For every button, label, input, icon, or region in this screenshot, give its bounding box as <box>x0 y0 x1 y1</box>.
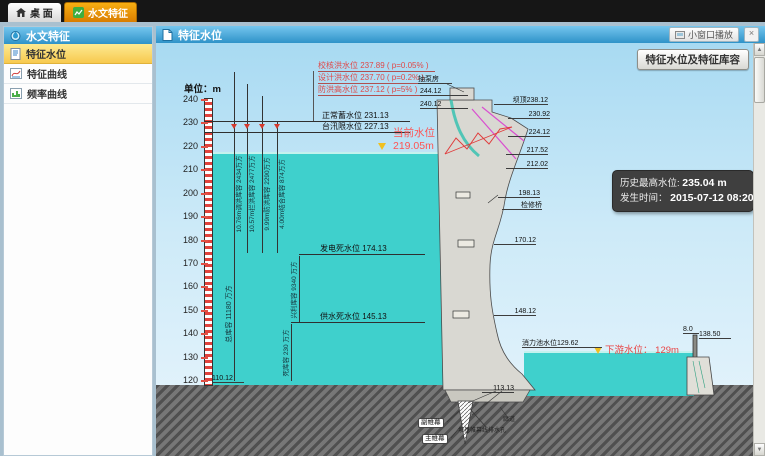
axis-tick-label: 210 <box>160 164 198 174</box>
axis-tick-mark <box>201 263 208 265</box>
tab-desktop[interactable]: 桌 面 <box>8 3 61 22</box>
tab-hydrology-label: 水文特征 <box>88 5 128 20</box>
capacity-arrow-icon <box>259 124 265 129</box>
main-curtain-label: 主帷幕 <box>422 434 448 444</box>
sidebar-title: 水文特征 <box>26 28 70 44</box>
axis-tick-mark <box>201 99 208 101</box>
current-water-level: 当前水位 219.05m <box>393 127 435 153</box>
axis-tick-mark <box>201 286 208 288</box>
power-dead-level-label: 发电死水位 174.13 <box>320 244 387 253</box>
elevation-callout: 8.0 <box>683 325 699 334</box>
capacity-button[interactable]: 特征水位及特征库容 <box>637 49 750 70</box>
axis-tick-mark <box>201 193 208 195</box>
mini-window-icon <box>675 31 685 39</box>
flood-limit-label: 台汛限水位 227.13 <box>322 122 389 131</box>
axis-tick-label: 170 <box>160 258 198 268</box>
unit-label: 单位：m <box>184 81 221 95</box>
gallery-lower <box>453 311 469 318</box>
mini-window-button[interactable]: 小窗口播放 <box>669 27 739 42</box>
history-time-value: 2015-07-12 08:20 <box>670 192 753 204</box>
scroll-down-icon[interactable]: ▼ <box>754 443 765 456</box>
home-icon <box>16 8 26 17</box>
history-time-label: 发生时间： <box>620 193 668 204</box>
scroll-up-icon[interactable]: ▲ <box>754 43 765 56</box>
capacity-arrow-icon <box>231 124 237 129</box>
axis-tick-mark <box>201 122 208 124</box>
axis-tick-label: 180 <box>160 235 198 245</box>
close-icon[interactable]: × <box>744 27 759 42</box>
power-dead-level-line <box>299 254 425 255</box>
foundation-note-label: 坝基帷幕线排水孔 <box>458 425 506 434</box>
elevation-callout: 198.13 <box>498 189 540 198</box>
level-connector-line <box>313 71 314 121</box>
gallery-note-label: 廊道 <box>503 414 515 423</box>
sidebar-item-frequency-curve[interactable]: 频率曲线 <box>4 84 152 104</box>
axis-tick-label: 200 <box>160 188 198 198</box>
axis-tick-mark <box>201 240 208 242</box>
staff-gauge <box>204 98 213 386</box>
axis-tick-label: 220 <box>160 141 198 151</box>
elevation-callout: 244.12 <box>420 87 468 96</box>
elevation-callout: 抽泵房 <box>418 75 452 84</box>
downstream-level-value: 129m <box>655 345 679 356</box>
vertical-scrollbar[interactable]: ▲ ▼ <box>753 43 765 456</box>
axis-tick-mark <box>201 216 208 218</box>
total-capacity-label: 总库容 11180 万方 <box>224 249 234 379</box>
sidebar-item-feature-curve[interactable]: 特征曲线 <box>4 64 152 84</box>
downstream-marker-icon <box>594 347 602 354</box>
current-water-level-value: 219.05m <box>393 140 435 153</box>
elevation-callout: 240.12 <box>420 100 468 109</box>
elevation-callout: 170.12 <box>494 236 536 245</box>
top-tab-bar: 桌 面 水文特征 <box>0 0 765 22</box>
elevation-callout: 230.92 <box>508 110 550 119</box>
gallery-middle <box>458 240 474 247</box>
axis-tick-mark <box>201 357 208 359</box>
elevation-callout: 消力池水位129.62 <box>522 339 602 348</box>
auxiliary-curtain-label: 副帷幕 <box>418 418 444 428</box>
panel-header: 特征水位 小窗口播放 × <box>156 26 765 43</box>
sidebar-item-feature-level[interactable]: 特征水位 <box>4 44 152 64</box>
axis-tick-label: 190 <box>160 211 198 221</box>
gallery-upper <box>456 192 470 198</box>
elevation-callout: 138.50 <box>699 330 731 339</box>
elevation-callout: 113.13 <box>482 384 514 393</box>
axis-tick-mark <box>201 169 208 171</box>
sidebar-item-label: 特征水位 <box>26 46 66 61</box>
history-max-level-label: 历史最高水位: <box>620 178 680 189</box>
chart-tab-icon <box>73 7 84 18</box>
supply-dead-level-line <box>291 322 425 323</box>
elevation-callout: 212.02 <box>506 160 548 169</box>
weir-needle <box>693 335 697 358</box>
dead-capacity-label: 死库容 230 万方 <box>280 308 290 398</box>
elevation-callout: 110.12 <box>212 374 244 383</box>
axis-tick-mark <box>201 310 208 312</box>
capacity-label: 10.76m调洪库容 2434万方 <box>233 139 243 249</box>
capacity-label: 9.99m防洪库容 2290万方 <box>261 139 271 249</box>
history-max-level-value: 235.04 m <box>682 177 726 189</box>
tab-desktop-label: 桌 面 <box>30 5 53 20</box>
normal-level-label: 正常蓄水位 231.13 <box>322 111 389 120</box>
axis-tick-mark <box>201 333 208 335</box>
axis-tick-label: 230 <box>160 117 198 127</box>
sidebar-header: 水文特征 <box>4 27 152 44</box>
axis-tick-label: 130 <box>160 352 198 362</box>
tab-hydrology[interactable]: 水文特征 <box>64 2 137 22</box>
check-flood-level: 校核洪水位 237.89 ( p=0.05% ) <box>318 60 435 72</box>
capacity-arrow-icon <box>274 124 280 129</box>
curve-chart-icon <box>10 68 22 79</box>
page-icon <box>162 29 173 41</box>
weir-block <box>687 357 714 395</box>
water-drop-icon <box>10 30 21 41</box>
scrollbar-thumb[interactable] <box>754 57 765 103</box>
document-icon <box>10 48 21 60</box>
capacity-label: 10.57m拦洪库容 2477万方 <box>246 139 256 249</box>
frequency-chart-icon <box>10 88 22 99</box>
panel-title: 特征水位 <box>178 27 222 43</box>
design-flood-level: 设计洪水位 237.70 ( p=0.2% ) <box>318 72 430 84</box>
grout-curtain-hatch <box>458 401 473 444</box>
water-surface-marker-icon <box>378 143 386 150</box>
elevation-callout: 坝顶238.12 <box>494 96 548 105</box>
elevation-callout: 检修桥 <box>502 201 542 210</box>
flood-limit-line <box>205 132 410 133</box>
mini-window-label: 小窗口播放 <box>688 28 733 41</box>
elevation-callout: 224.12 <box>508 128 550 137</box>
downstream-level-label: 下游水位： <box>605 345 653 356</box>
axis-tick-label: 140 <box>160 328 198 338</box>
history-tooltip: 历史最高水位: 235.04 m 发生时间： 2015-07-12 08:20 <box>612 170 753 212</box>
current-water-level-label: 当前水位 <box>393 127 435 140</box>
history-max-level-row: 历史最高水位: 235.04 m <box>620 176 746 191</box>
app-root: { "tabs": {"desktop": "桌 面", "active": "… <box>0 0 765 456</box>
sidebar: 水文特征 特征水位 特征曲线 频率曲线 <box>3 26 153 456</box>
sidebar-item-label: 频率曲线 <box>27 86 67 101</box>
main-panel: 特征水位 小窗口播放 × <box>156 26 765 456</box>
capacity-label: 4.00m结合库容 874万方 <box>276 139 286 249</box>
beneficial-capacity-line <box>299 256 300 322</box>
axis-tick-mark <box>201 380 208 382</box>
flood-high-level: 防洪高水位 237.12 ( p=5% ) <box>318 84 423 96</box>
axis-tick-label: 120 <box>160 375 198 385</box>
dam-diagram: 特征水位及特征库容 单位：m 校核洪水位 237.89 ( p=0.05% ) … <box>156 43 753 456</box>
axis-tick-label: 150 <box>160 305 198 315</box>
elevation-callout: 148.12 <box>494 307 536 316</box>
dead-capacity-line <box>291 324 292 381</box>
axis-tick-mark <box>201 146 208 148</box>
downstream-level: 下游水位： 129m <box>605 342 679 356</box>
capacity-arrow-icon <box>244 124 250 129</box>
axis-tick-label: 240 <box>160 94 198 104</box>
supply-dead-level-label: 供水死水位 145.13 <box>320 312 387 321</box>
axis-tick-label: 160 <box>160 281 198 291</box>
elevation-callout: 217.52 <box>506 146 548 155</box>
sidebar-item-label: 特征曲线 <box>27 66 67 81</box>
history-time-row: 发生时间： 2015-07-12 08:20 <box>620 191 746 206</box>
